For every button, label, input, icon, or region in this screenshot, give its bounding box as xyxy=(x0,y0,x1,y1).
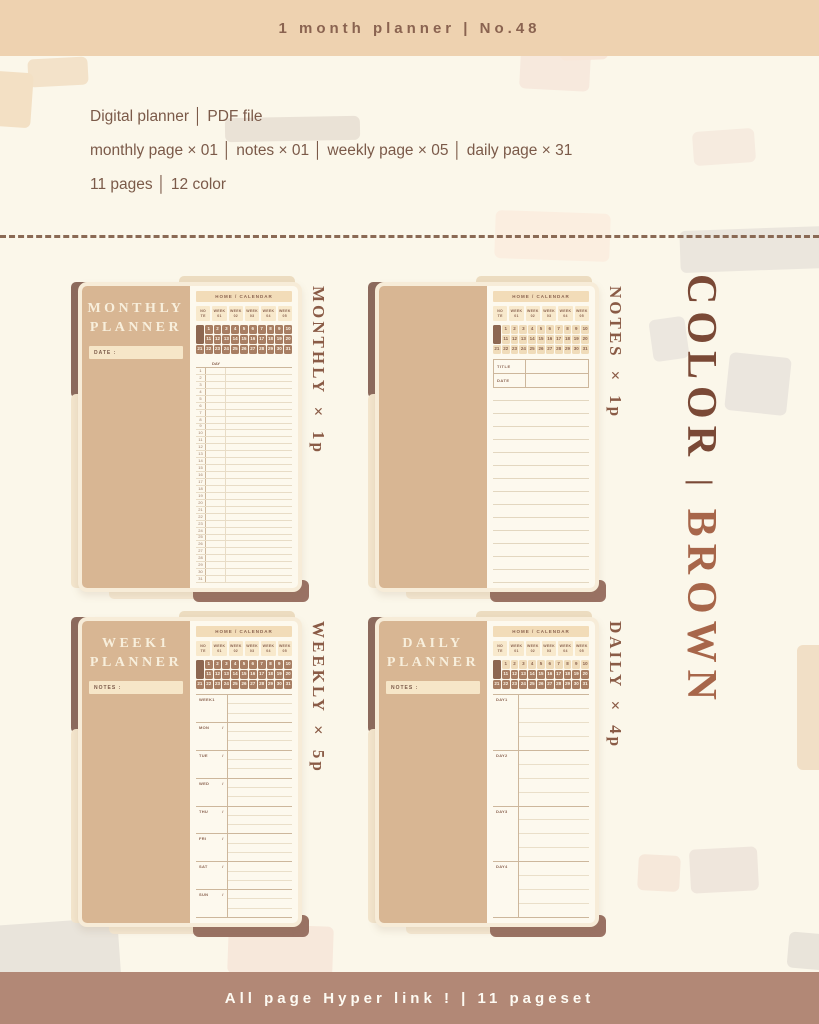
color-word: COLOR xyxy=(678,274,724,463)
day-cell: 7 xyxy=(258,660,266,669)
day-list-row: 12 xyxy=(196,444,292,451)
week-tab: WEEK05 xyxy=(575,641,589,656)
day-cell: 2 xyxy=(214,660,222,669)
day-cell: 31 xyxy=(581,345,589,354)
day-cell: 21 xyxy=(493,345,501,354)
day-cell: 22 xyxy=(205,680,213,689)
day-cell: 25 xyxy=(231,680,239,689)
day-cell: 25 xyxy=(231,345,239,354)
day-list-row: 30 xyxy=(196,569,292,576)
day-cell: 6 xyxy=(546,660,554,669)
day-cell: 13 xyxy=(519,335,527,344)
day-cell: 26 xyxy=(537,680,545,689)
day-cell: 15 xyxy=(537,670,545,679)
day-cell: 18 xyxy=(267,335,275,344)
day-cell: 7 xyxy=(555,325,563,334)
day-cell: 20 xyxy=(284,335,292,344)
week-tab: NOTE xyxy=(493,306,507,321)
week-tab: WEEK05 xyxy=(575,306,589,321)
side-label-monthly: MONTHLY × 1p xyxy=(308,286,328,455)
day-cell: 9 xyxy=(275,325,283,334)
day-list-row: 20 xyxy=(196,500,292,507)
day-cell: 8 xyxy=(267,660,275,669)
day-cell: 28 xyxy=(258,680,266,689)
day-list-row: 7 xyxy=(196,410,292,417)
week-tab: WEEK01 xyxy=(212,306,226,321)
planner-card-monthly: MONTHLYPLANNERDATE :HOME / CALENDARNOTEW… xyxy=(78,282,302,592)
page-header-label: HOME / CALENDAR xyxy=(493,291,589,302)
ruled-line xyxy=(493,401,589,414)
day-cell: 24 xyxy=(519,680,527,689)
page-body: DAY1DAY2DAY3DAY4 xyxy=(493,694,589,918)
page-body: DAY1234567891011121314151617181920212223… xyxy=(196,359,292,583)
notes-field-row: DATE xyxy=(493,374,589,388)
week-tab: WEEK01 xyxy=(212,641,226,656)
footer-banner: All page Hyper link ! | 11 pageset xyxy=(0,972,819,1024)
notes-field-row: TITLE xyxy=(493,359,589,374)
page-body: TITLEDATE xyxy=(493,359,589,583)
week-tab: WEEK02 xyxy=(229,641,243,656)
day-cell: 28 xyxy=(258,345,266,354)
day-list-row: 31 xyxy=(196,576,292,583)
panel-field-label: DATE : xyxy=(89,346,183,359)
week-tab: WEEK03 xyxy=(542,641,556,656)
day-list-row: 4 xyxy=(196,389,292,396)
day-cell: 24 xyxy=(222,680,230,689)
day-cell: 24 xyxy=(519,345,527,354)
day-cell: 16 xyxy=(546,335,554,344)
day-cell: 30 xyxy=(572,680,580,689)
day-cell: 14 xyxy=(528,335,536,344)
planner-product-sheet: 1 month planner | No.48 Digital planner … xyxy=(0,0,819,1024)
day-cell: 19 xyxy=(572,335,580,344)
day-cell: 26 xyxy=(240,345,248,354)
day-cell: 5 xyxy=(240,325,248,334)
ruled-line xyxy=(493,544,589,557)
week-row: SUN/ xyxy=(196,889,292,918)
day-cell: 1 xyxy=(205,660,213,669)
day-cell: 3 xyxy=(519,660,527,669)
week-tab: WEEK01 xyxy=(509,306,523,321)
day-list-row: 22 xyxy=(196,514,292,521)
planner-page: HOME / CALENDARNOTEWEEK01WEEK02WEEK03WEE… xyxy=(375,282,599,592)
day-list-row: 6 xyxy=(196,403,292,410)
month-label-cell xyxy=(493,660,501,679)
day-cell: 6 xyxy=(546,325,554,334)
planner-card-notes: HOME / CALENDARNOTEWEEK01WEEK02WEEK03WEE… xyxy=(375,282,599,592)
day-cell: 14 xyxy=(528,670,536,679)
day-cell: 14 xyxy=(231,335,239,344)
page-header-label: HOME / CALENDAR xyxy=(196,291,292,302)
week-row: MON/ xyxy=(196,722,292,750)
day-cell: 21 xyxy=(493,680,501,689)
day-list-row: 18 xyxy=(196,486,292,493)
panel-title: WEEK1PLANNER xyxy=(82,634,190,672)
day-list-header: DAY xyxy=(196,359,292,368)
day-cell: 9 xyxy=(572,325,580,334)
day-cell: 29 xyxy=(564,680,572,689)
day-cell: 17 xyxy=(555,670,563,679)
page-content: HOME / CALENDARNOTEWEEK01WEEK02WEEK03WEE… xyxy=(190,621,298,923)
day-cell: 31 xyxy=(284,345,292,354)
side-label-daily: DAILY × 4p xyxy=(605,621,625,749)
day-cell: 15 xyxy=(240,335,248,344)
week-tab: NOTE xyxy=(196,641,210,656)
ruled-line xyxy=(493,479,589,492)
day-cell: 27 xyxy=(249,680,257,689)
month-label-cell xyxy=(196,660,204,679)
day-cell: 19 xyxy=(275,335,283,344)
ruled-line xyxy=(493,531,589,544)
day-cell: 28 xyxy=(555,345,563,354)
day-cell: 23 xyxy=(511,680,519,689)
day-list-row: 28 xyxy=(196,555,292,562)
day-cell: 25 xyxy=(528,345,536,354)
day-list-row: 29 xyxy=(196,562,292,569)
day-list-row: 10 xyxy=(196,430,292,437)
day-cell: 8 xyxy=(564,660,572,669)
planner-card-weekly: WEEK1PLANNERNOTES :HOME / CALENDARNOTEWE… xyxy=(78,617,302,927)
color-name-vertical: COLOR|BROWN xyxy=(680,274,722,707)
day-cell: 11 xyxy=(205,670,213,679)
day-cell: 2 xyxy=(214,325,222,334)
ruled-line xyxy=(493,557,589,570)
day-cell: 30 xyxy=(275,345,283,354)
day-row: DAY2 xyxy=(493,750,589,806)
mini-calendar: 1234567891011121314151617181920212223242… xyxy=(196,325,292,354)
page-header-label: HOME / CALENDAR xyxy=(493,626,589,637)
day-cell: 1 xyxy=(502,325,510,334)
page-content: HOME / CALENDARNOTEWEEK01WEEK02WEEK03WEE… xyxy=(487,286,595,588)
ruled-line xyxy=(493,570,589,583)
week-tab: WEEK02 xyxy=(526,641,540,656)
day-cell: 16 xyxy=(249,335,257,344)
day-cell: 12 xyxy=(214,335,222,344)
day-cell: 27 xyxy=(249,345,257,354)
day-cell: 10 xyxy=(284,325,292,334)
week-row: FRI/ xyxy=(196,833,292,861)
side-label-weekly: WEEKLY × 5p xyxy=(308,621,328,774)
day-list-row: 9 xyxy=(196,424,292,431)
day-row: DAY4 xyxy=(493,861,589,918)
page-body: WEEK1MON/TUE/WED/THU/FRI/SAT/SUN/ xyxy=(196,694,292,918)
footer-text: All page Hyper link ! | 11 pageset xyxy=(225,990,594,1007)
day-cell: 5 xyxy=(537,325,545,334)
day-cell: 13 xyxy=(222,335,230,344)
day-list-row: 25 xyxy=(196,535,292,542)
day-cell: 21 xyxy=(196,345,204,354)
day-cell: 31 xyxy=(284,680,292,689)
ruled-line xyxy=(493,388,589,401)
day-list-row: 13 xyxy=(196,451,292,458)
color-divider: | xyxy=(686,463,716,509)
day-cell: 13 xyxy=(519,670,527,679)
day-cell: 7 xyxy=(258,325,266,334)
day-row: DAY3 xyxy=(493,806,589,862)
day-list-row: 14 xyxy=(196,458,292,465)
day-cell: 25 xyxy=(528,680,536,689)
day-cell: 6 xyxy=(249,660,257,669)
day-cell: 26 xyxy=(537,345,545,354)
planner-page: DAILYPLANNERNOTES :HOME / CALENDARNOTEWE… xyxy=(375,617,599,927)
day-cell: 4 xyxy=(528,325,536,334)
day-cell: 20 xyxy=(581,670,589,679)
day-cell: 11 xyxy=(502,335,510,344)
day-cell: 3 xyxy=(222,660,230,669)
day-cell: 3 xyxy=(222,325,230,334)
ruled-line xyxy=(493,492,589,505)
week-tab: NOTE xyxy=(493,641,507,656)
day-list-row: 1 xyxy=(196,368,292,375)
week-row: WED/ xyxy=(196,778,292,806)
ruled-line xyxy=(493,505,589,518)
week-tab: NOTE xyxy=(196,306,210,321)
mini-calendar: 1234567891011121314151617181920212223242… xyxy=(493,660,589,689)
week-row: THU/ xyxy=(196,806,292,834)
day-cell: 4 xyxy=(231,660,239,669)
day-cell: 23 xyxy=(214,345,222,354)
panel-field-label: NOTES : xyxy=(386,681,480,694)
day-cell: 16 xyxy=(546,670,554,679)
day-cell: 31 xyxy=(581,680,589,689)
day-cell: 18 xyxy=(267,670,275,679)
day-cell: 15 xyxy=(240,670,248,679)
day-cell: 19 xyxy=(572,670,580,679)
day-cell: 1 xyxy=(502,660,510,669)
day-cell: 2 xyxy=(511,660,519,669)
day-cell: 11 xyxy=(502,670,510,679)
brown-word: BROWN xyxy=(678,509,724,707)
day-cell: 17 xyxy=(258,670,266,679)
planner-card-daily: DAILYPLANNERNOTES :HOME / CALENDARNOTEWE… xyxy=(375,617,599,927)
ruled-line xyxy=(493,453,589,466)
day-cell: 27 xyxy=(546,680,554,689)
day-cell: 18 xyxy=(564,670,572,679)
day-cell: 9 xyxy=(572,660,580,669)
day-cell: 12 xyxy=(214,670,222,679)
day-cell: 2 xyxy=(511,325,519,334)
week-row: SAT/ xyxy=(196,861,292,889)
week-tabs: NOTEWEEK01WEEK02WEEK03WEEK04WEEK05 xyxy=(493,641,589,656)
panel-title-line: WEEK1 xyxy=(82,634,190,653)
day-cell: 22 xyxy=(502,680,510,689)
day-cell: 12 xyxy=(511,335,519,344)
day-cell: 5 xyxy=(240,660,248,669)
ruled-line xyxy=(493,440,589,453)
planner-page: MONTHLYPLANNERDATE :HOME / CALENDARNOTEW… xyxy=(78,282,302,592)
page-content: HOME / CALENDARNOTEWEEK01WEEK02WEEK03WEE… xyxy=(190,286,298,588)
month-label-cell xyxy=(493,325,501,344)
cover-panel: WEEK1PLANNERNOTES : xyxy=(82,621,190,923)
panel-title: DAILYPLANNER xyxy=(379,634,487,672)
day-list-row: 21 xyxy=(196,507,292,514)
day-cell: 3 xyxy=(519,325,527,334)
day-cell: 10 xyxy=(581,325,589,334)
day-cell: 1 xyxy=(205,325,213,334)
day-cell: 29 xyxy=(267,345,275,354)
day-list-row: 15 xyxy=(196,465,292,472)
day-cell: 30 xyxy=(572,345,580,354)
day-list-row: 5 xyxy=(196,396,292,403)
cover-panel: DAILYPLANNERNOTES : xyxy=(379,621,487,923)
day-list-row: 17 xyxy=(196,479,292,486)
mini-calendar: 1234567891011121314151617181920212223242… xyxy=(196,660,292,689)
day-cell: 10 xyxy=(581,660,589,669)
day-row: DAY1 xyxy=(493,694,589,750)
week-tabs: NOTEWEEK01WEEK02WEEK03WEEK04WEEK05 xyxy=(196,641,292,656)
day-cell: 28 xyxy=(555,680,563,689)
week-tabs: NOTEWEEK01WEEK02WEEK03WEEK04WEEK05 xyxy=(196,306,292,321)
day-cell: 7 xyxy=(555,660,563,669)
cover-panel: MONTHLYPLANNERDATE : xyxy=(82,286,190,588)
ruled-line xyxy=(493,427,589,440)
panel-title-line: DAILY xyxy=(379,634,487,653)
day-list-row: 24 xyxy=(196,528,292,535)
day-cell: 5 xyxy=(537,660,545,669)
day-list-row: 2 xyxy=(196,375,292,382)
day-cell: 17 xyxy=(258,335,266,344)
panel-title-line: MONTHLY xyxy=(82,299,190,318)
day-cell: 4 xyxy=(231,325,239,334)
day-cell: 15 xyxy=(537,335,545,344)
panel-title: MONTHLYPLANNER xyxy=(82,299,190,337)
week-tab: WEEK03 xyxy=(245,641,259,656)
day-list-row: 11 xyxy=(196,437,292,444)
day-cell: 9 xyxy=(275,660,283,669)
week-tab: WEEK04 xyxy=(558,306,572,321)
day-list-row: 26 xyxy=(196,541,292,548)
cover-panel xyxy=(379,286,487,588)
day-cell: 29 xyxy=(267,680,275,689)
week-tab: WEEK05 xyxy=(278,641,292,656)
day-cell: 30 xyxy=(275,680,283,689)
day-cell: 12 xyxy=(511,670,519,679)
side-label-notes: NOTES × 1p xyxy=(605,286,625,419)
day-list-row: 8 xyxy=(196,417,292,424)
day-cell: 16 xyxy=(249,670,257,679)
week-tab: WEEK04 xyxy=(261,306,275,321)
day-list-row: 27 xyxy=(196,548,292,555)
day-cell: 27 xyxy=(546,345,554,354)
page-header-label: HOME / CALENDAR xyxy=(196,626,292,637)
ruled-line xyxy=(493,466,589,479)
week-tab: WEEK04 xyxy=(261,641,275,656)
panel-title-line: PLANNER xyxy=(379,653,487,672)
week-tab: WEEK03 xyxy=(245,306,259,321)
week-tab: WEEK04 xyxy=(558,641,572,656)
day-cell: 20 xyxy=(581,335,589,344)
day-cell: 19 xyxy=(275,670,283,679)
day-list-row: 19 xyxy=(196,493,292,500)
week-tab: WEEK03 xyxy=(542,306,556,321)
day-cell: 23 xyxy=(214,680,222,689)
panel-title-line: PLANNER xyxy=(82,653,190,672)
panel-field-label: NOTES : xyxy=(89,681,183,694)
day-cell: 26 xyxy=(240,680,248,689)
day-cell: 10 xyxy=(284,660,292,669)
day-cell: 21 xyxy=(196,680,204,689)
day-cell: 22 xyxy=(205,345,213,354)
day-list-row: 23 xyxy=(196,521,292,528)
mini-calendar: 1234567891011121314151617181920212223242… xyxy=(493,325,589,354)
day-cell: 17 xyxy=(555,335,563,344)
month-label-cell xyxy=(196,325,204,344)
week-row: TUE/ xyxy=(196,750,292,778)
day-cell: 8 xyxy=(564,325,572,334)
planner-page: WEEK1PLANNERNOTES :HOME / CALENDARNOTEWE… xyxy=(78,617,302,927)
week-tab: WEEK05 xyxy=(278,306,292,321)
week-tabs: NOTEWEEK01WEEK02WEEK03WEEK04WEEK05 xyxy=(493,306,589,321)
day-list-row: 16 xyxy=(196,472,292,479)
day-cell: 4 xyxy=(528,660,536,669)
page-content: HOME / CALENDARNOTEWEEK01WEEK02WEEK03WEE… xyxy=(487,621,595,923)
week-tab: WEEK02 xyxy=(229,306,243,321)
day-list-row: 3 xyxy=(196,382,292,389)
week-row: WEEK1 xyxy=(196,694,292,722)
day-cell: 22 xyxy=(502,345,510,354)
panel-title-line: PLANNER xyxy=(82,318,190,337)
day-cell: 20 xyxy=(284,670,292,679)
day-cell: 14 xyxy=(231,670,239,679)
day-cell: 29 xyxy=(564,345,572,354)
ruled-line xyxy=(493,414,589,427)
day-cell: 13 xyxy=(222,670,230,679)
day-cell: 24 xyxy=(222,345,230,354)
ruled-line xyxy=(493,518,589,531)
day-cell: 23 xyxy=(511,345,519,354)
week-tab: WEEK01 xyxy=(509,641,523,656)
day-cell: 6 xyxy=(249,325,257,334)
day-cell: 18 xyxy=(564,335,572,344)
week-tab: WEEK02 xyxy=(526,306,540,321)
day-cell: 8 xyxy=(267,325,275,334)
day-cell: 11 xyxy=(205,335,213,344)
